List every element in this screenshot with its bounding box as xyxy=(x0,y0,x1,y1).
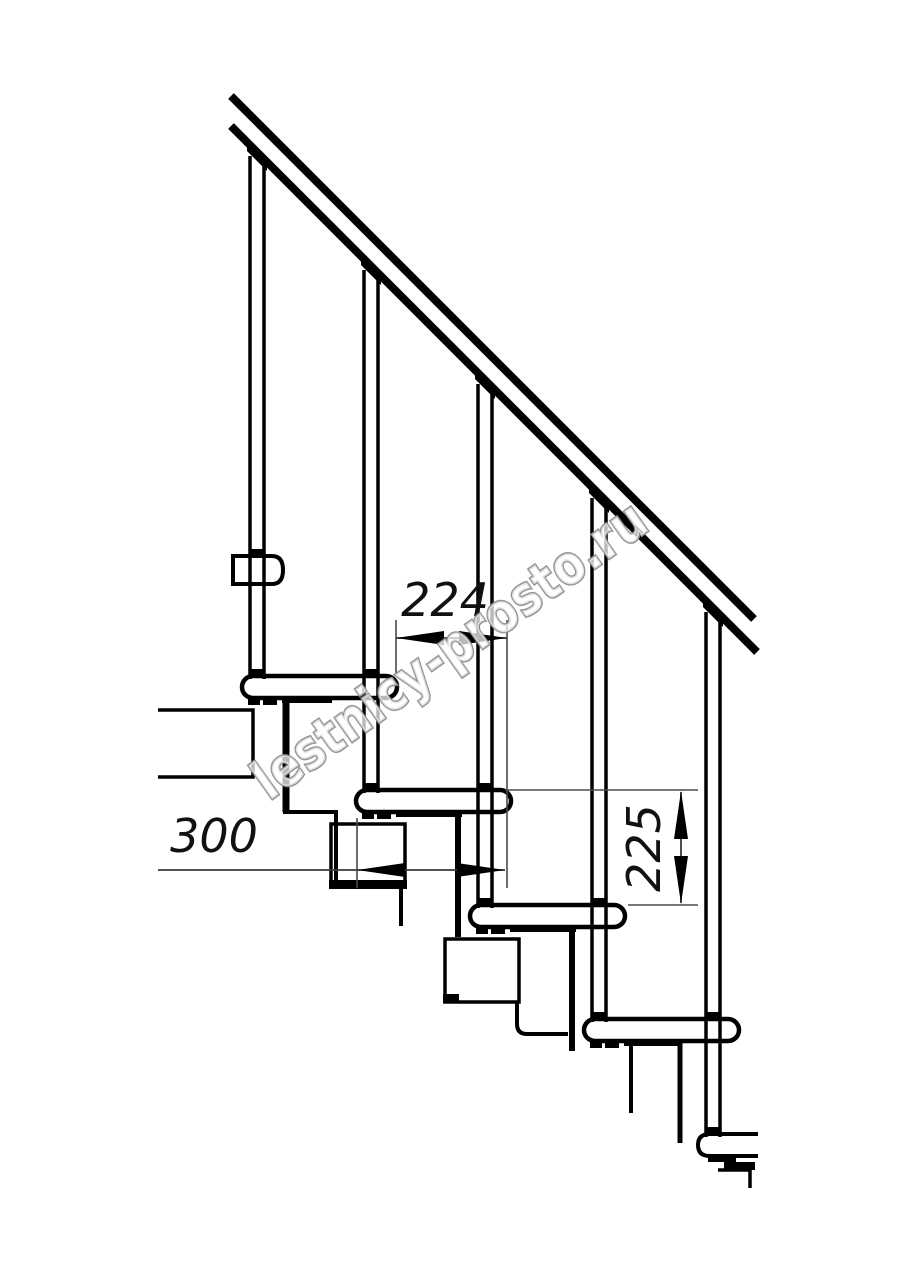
tread-3 xyxy=(470,905,625,927)
baluster-4-collar xyxy=(591,898,607,905)
staircase-drawing-page: 224 300 225 lestnicy-prosto.ru xyxy=(0,0,914,1280)
module-3-box xyxy=(445,939,519,1002)
staircase-drawing: 224 300 225 lestnicy-prosto.ru xyxy=(0,0,914,1280)
tread-5-partial xyxy=(698,1134,758,1156)
dimension-rise-225: 225 xyxy=(505,790,698,905)
baluster-1-collar xyxy=(249,669,265,676)
site-watermark: lestnicy-prosto.ru xyxy=(240,487,659,811)
module-3-elbow xyxy=(517,1002,568,1034)
baluster-1-collar xyxy=(249,549,265,556)
module-3-base-corner xyxy=(443,994,459,1003)
tread-1-bracket xyxy=(263,697,277,705)
tread-4-plate xyxy=(624,1039,680,1046)
arrow-right xyxy=(457,863,505,877)
tread-4 xyxy=(584,1019,739,1041)
tread-1-bracket xyxy=(248,697,260,705)
baluster-5-collar xyxy=(705,1127,721,1134)
tread-2-plate xyxy=(396,810,462,817)
tread-5-bracket xyxy=(708,1154,736,1162)
baluster-5 xyxy=(703,599,723,1137)
handrail-bottom-line xyxy=(231,126,757,652)
tread-3-bracket xyxy=(491,926,505,934)
tread-5-mount-line xyxy=(718,1170,750,1188)
tread-4-bracket xyxy=(590,1040,602,1048)
baluster-3-collar xyxy=(477,898,493,905)
module-2-base-plate xyxy=(329,880,407,889)
baluster-3-collar xyxy=(477,783,493,790)
handrail xyxy=(231,96,757,652)
tread-2-bracket xyxy=(362,811,374,819)
tread-2-bracket xyxy=(377,811,391,819)
upper-module-stub xyxy=(158,710,253,777)
module-2-box xyxy=(331,824,405,887)
arrow-up xyxy=(674,791,688,839)
arrow-down xyxy=(674,856,688,904)
tread-2 xyxy=(356,790,511,812)
tread-3-plate xyxy=(510,925,576,932)
baluster-4-collar xyxy=(591,1012,607,1019)
tread-3-bracket xyxy=(476,926,488,934)
tread-0-end-cap xyxy=(233,556,283,584)
baluster-2-collar xyxy=(363,783,379,790)
tread-4-bracket xyxy=(605,1040,619,1048)
baluster-5-collar xyxy=(705,1012,721,1019)
dimension-label-depth: 300 xyxy=(170,809,258,863)
dimension-label-rise: 225 xyxy=(617,804,671,892)
baluster-1 xyxy=(247,143,267,679)
